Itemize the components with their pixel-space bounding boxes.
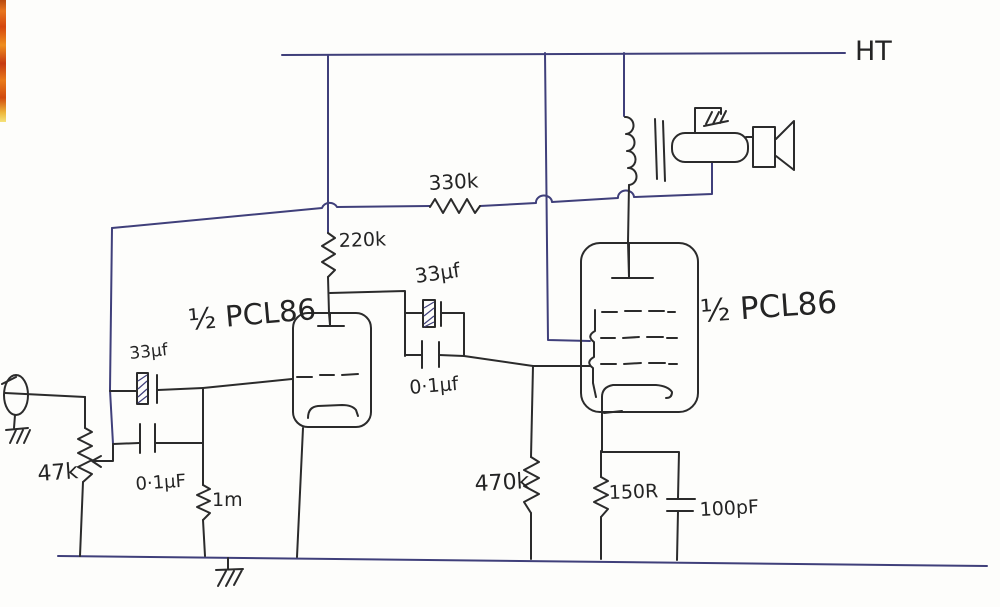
label-coupling-0-1uf: 0·1μf bbox=[409, 373, 461, 399]
pentode-grid-dashes-3 bbox=[601, 363, 677, 364]
triode-cathode-wire bbox=[297, 428, 303, 557]
transformer-primary bbox=[625, 117, 637, 185]
label-100pf: 100pF bbox=[699, 496, 759, 521]
resistor-470k bbox=[524, 366, 539, 559]
pot-wiper-arrow bbox=[92, 444, 113, 467]
label-tube-right: ½ PCL86 bbox=[699, 285, 838, 330]
speaker bbox=[746, 121, 794, 170]
pentode-grid-wire bbox=[464, 356, 590, 366]
triode-cathode bbox=[308, 405, 358, 418]
label-tube-left: ½ PCL86 bbox=[187, 292, 318, 337]
pentode-anode bbox=[612, 243, 653, 278]
coupling-network bbox=[330, 291, 590, 368]
ground-symbol-rail bbox=[216, 558, 243, 586]
resistor-150r bbox=[594, 451, 608, 559]
label-coupling-33uf: 33μf bbox=[413, 258, 462, 288]
pentode-grid-dashes-1 bbox=[602, 311, 675, 312]
speaker-horn bbox=[776, 121, 794, 170]
input-cap-film-0.1uf bbox=[113, 424, 203, 453]
screen-grid-wire bbox=[545, 53, 590, 341]
schematic-canvas: HT 330k 220k 33μf 0·1μf ½ PCL86 ½ PCL86 … bbox=[0, 0, 1000, 607]
pentode-grid-dashes-2 bbox=[601, 337, 677, 338]
label-ht: HT bbox=[855, 36, 892, 67]
scanned-schematic-page: HT 330k 220k 33μf 0·1μf ½ PCL86 ½ PCL86 … bbox=[0, 0, 1000, 607]
ht-rail bbox=[282, 53, 845, 55]
cap-100pf bbox=[602, 452, 695, 560]
resistor-220k bbox=[322, 55, 335, 325]
ground-rail bbox=[58, 556, 987, 566]
pentode-cathode bbox=[602, 385, 672, 398]
pentode-grid-rail bbox=[589, 310, 596, 397]
label-1m: 1m bbox=[212, 489, 243, 511]
label-220k: 220k bbox=[338, 228, 386, 252]
label-input-33uf: 33μf bbox=[128, 340, 169, 364]
feedback-left-vertical bbox=[110, 228, 113, 444]
label-330k: 330k bbox=[428, 168, 479, 195]
volume-pot-47k bbox=[78, 397, 113, 556]
label-input-0-1uf: 0·1μF bbox=[135, 471, 187, 495]
transformer-core bbox=[655, 119, 665, 181]
triode-grid-wire bbox=[203, 379, 292, 388]
tube-triode bbox=[203, 313, 371, 557]
pentode-anode-wire bbox=[628, 185, 629, 277]
transformer-secondary bbox=[672, 133, 748, 162]
label-47k: 47k bbox=[37, 459, 80, 487]
input-jack bbox=[2, 375, 85, 415]
triode-grid-dashes bbox=[297, 374, 358, 377]
label-150r: 150R bbox=[608, 480, 658, 504]
resistor-330k bbox=[430, 199, 480, 213]
resistor-1m bbox=[197, 388, 210, 556]
tube-pentode bbox=[581, 243, 698, 451]
ground-symbol-transformer bbox=[704, 111, 728, 126]
label-470k: 470k bbox=[474, 469, 530, 497]
pentode-cathode-wire bbox=[602, 397, 622, 451]
input-cap-electrolytic-33uf bbox=[110, 373, 203, 404]
ground-symbol-input-jack bbox=[6, 415, 30, 443]
triode-anode bbox=[318, 313, 344, 326]
